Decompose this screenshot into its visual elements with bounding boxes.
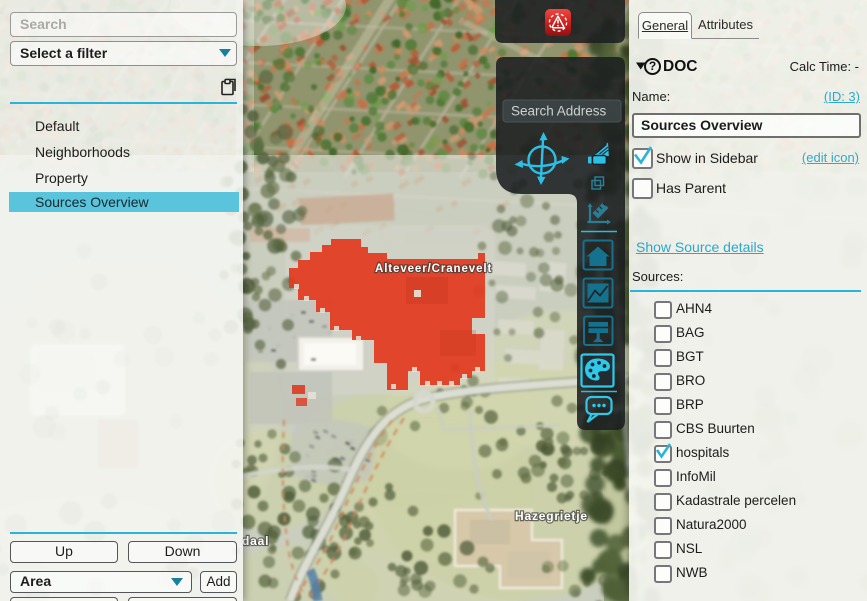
svg-text:daal: daal xyxy=(242,534,269,548)
svg-text:Search Address: Search Address xyxy=(511,104,607,119)
svg-text:Alteveer/Cranevelt: Alteveer/Cranevelt xyxy=(375,263,492,275)
svg-text:Hazegrietje: Hazegrietje xyxy=(515,509,588,523)
